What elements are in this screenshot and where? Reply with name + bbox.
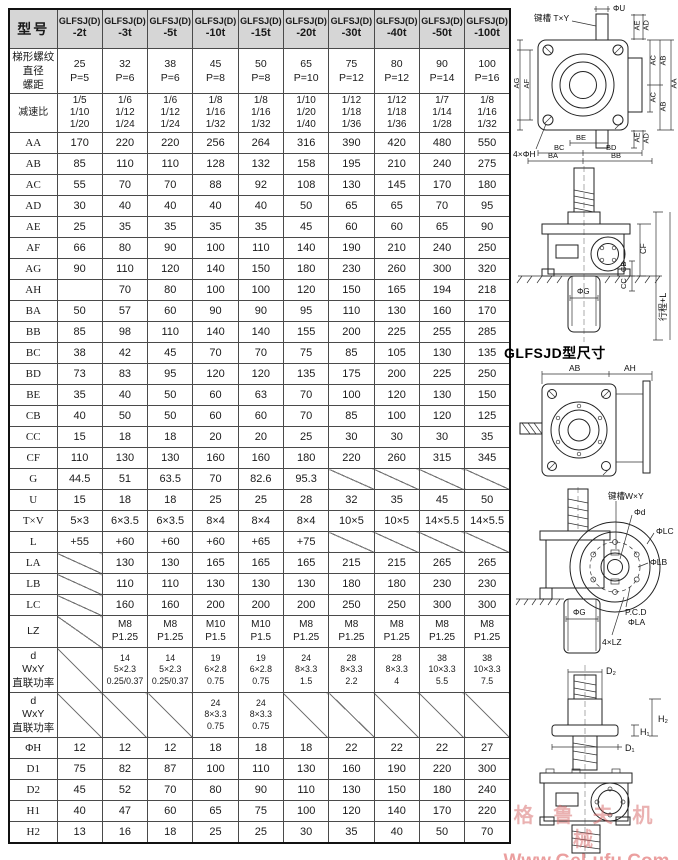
table-cell: 90 xyxy=(148,238,193,259)
table-cell: 5×3 xyxy=(57,511,102,532)
table-cell: 180 xyxy=(419,780,464,801)
table-cell: 35 xyxy=(193,217,238,238)
table-cell: 70 xyxy=(283,406,328,427)
table-cell: 35 xyxy=(238,217,283,238)
dim-label-ac-up: AC xyxy=(649,54,658,65)
dim-label-h1: H₁ xyxy=(640,727,650,737)
table-cell: 60 xyxy=(374,217,419,238)
table-cell: 1/121/181/36 xyxy=(329,94,374,133)
table-cell: 8×4 xyxy=(193,511,238,532)
table-cell: 170 xyxy=(465,301,510,322)
table-cell: 200 xyxy=(193,595,238,616)
table-row: BD738395120120135175200225250 xyxy=(9,364,510,385)
table-cell xyxy=(329,469,374,490)
table-cell: 95 xyxy=(283,301,328,322)
table-cell: 240 xyxy=(419,154,464,175)
table-cell: 22 xyxy=(329,738,374,759)
table-cell: M8P1.25 xyxy=(148,616,193,648)
table-cell: 1/51/101/20 xyxy=(57,94,102,133)
table-cell: 100 xyxy=(193,238,238,259)
row-label: H2 xyxy=(9,822,57,844)
table-cell: 215 xyxy=(329,553,374,574)
table-cell: 190 xyxy=(329,238,374,259)
table-cell: 165 xyxy=(238,553,283,574)
table-cell: 14×5.5 xyxy=(419,511,464,532)
table-cell: 128 xyxy=(193,154,238,175)
table-cell: 16 xyxy=(102,822,147,844)
table-cell: +75 xyxy=(283,532,328,553)
table-cell: 130 xyxy=(238,574,283,595)
table-cell: 98 xyxy=(102,322,147,343)
table-cell: 35 xyxy=(374,490,419,511)
table-cell: 100 xyxy=(193,759,238,780)
table-cell: 100 xyxy=(193,280,238,301)
table-cell: 70 xyxy=(419,196,464,217)
row-label: BA xyxy=(9,301,57,322)
table-cell: 35 xyxy=(329,822,374,844)
dim-label-4xphih: 4×ΦH xyxy=(513,149,536,159)
table-cell: 1/61/121/24 xyxy=(148,94,193,133)
table-cell: 218 xyxy=(465,280,510,301)
table-cell: 110 xyxy=(238,759,283,780)
table-cell: 196×2.80.75 xyxy=(238,648,283,693)
table-cell: 140 xyxy=(193,259,238,280)
table-cell: 12 xyxy=(148,738,193,759)
table-row: U15181825252832354550 xyxy=(9,490,510,511)
table-cell: 50 xyxy=(419,822,464,844)
table-cell: 150 xyxy=(329,280,374,301)
table-cell: 225 xyxy=(419,364,464,385)
table-cell: 50 xyxy=(102,406,147,427)
table-row: dWxY直联功率145×2.30.25/0.37145×2.30.25/0.37… xyxy=(9,648,510,693)
row-label: CB xyxy=(9,406,57,427)
table-cell: M8P1.25 xyxy=(374,616,419,648)
table-cell: 18 xyxy=(102,427,147,448)
row-label: AH xyxy=(9,280,57,301)
table-cell: 25 xyxy=(193,490,238,511)
table-cell: 180 xyxy=(283,259,328,280)
table-row: AG90110120140150180230260300320 xyxy=(9,259,510,280)
table-cell: 95 xyxy=(465,196,510,217)
drawing-flange-detail: D₂ H₂ H₁ D₁ xyxy=(512,665,678,860)
table-cell: 130 xyxy=(419,385,464,406)
table-cell: 120 xyxy=(374,385,419,406)
table-cell: 25 xyxy=(57,217,102,238)
row-label: LA xyxy=(9,553,57,574)
dim-label-ab-up: AB xyxy=(659,55,668,65)
table-cell: 80P=12 xyxy=(374,49,419,94)
table-cell: 20 xyxy=(238,427,283,448)
table-cell: 248×3.30.75 xyxy=(238,693,283,738)
table-row: T×V5×36×3.56×3.58×48×48×410×510×514×5.51… xyxy=(9,511,510,532)
dim-label-ad-bot: AD xyxy=(642,132,651,143)
col-header-15t: GLFSJ(D)-15t xyxy=(238,9,283,49)
table-cell: 95.3 xyxy=(283,469,328,490)
table-cell: 32P=6 xyxy=(102,49,147,94)
row-label: U xyxy=(9,490,57,511)
table-cell: 80 xyxy=(193,780,238,801)
table-cell: 57 xyxy=(102,301,147,322)
table-cell: 100 xyxy=(283,801,328,822)
table-cell xyxy=(329,693,374,738)
table-cell: 50 xyxy=(148,406,193,427)
table-cell: 105 xyxy=(374,343,419,364)
dim-label-d2: D₂ xyxy=(606,666,616,676)
table-cell: 140 xyxy=(238,322,283,343)
table-cell: 550 xyxy=(465,133,510,154)
table-row: AE25353535354560606590 xyxy=(9,217,510,238)
table-cell: 250 xyxy=(465,364,510,385)
table-cell xyxy=(102,693,147,738)
table-cell: 150 xyxy=(238,259,283,280)
table-row: CF110130130160160180220260315345 xyxy=(9,448,510,469)
row-label: CC xyxy=(9,427,57,448)
table-cell: 130 xyxy=(329,780,374,801)
row-label: D2 xyxy=(9,780,57,801)
dim-label-4xlz: 4×LZ xyxy=(602,637,622,647)
table-cell: 45 xyxy=(283,217,328,238)
table-cell: 25P=5 xyxy=(57,49,102,94)
table-cell: 220 xyxy=(148,133,193,154)
table-cell: 63 xyxy=(238,385,283,406)
row-label: BD xyxy=(9,364,57,385)
row-label: AC xyxy=(9,175,57,196)
table-cell: 60 xyxy=(329,217,374,238)
dim-label-phi-g2: ΦG xyxy=(573,608,586,617)
table-cell: 18 xyxy=(148,490,193,511)
table-cell xyxy=(465,469,510,490)
table-cell: 90 xyxy=(193,301,238,322)
dim-label-be: BE xyxy=(576,133,586,142)
table-cell: +55 xyxy=(57,532,102,553)
table-cell: 45 xyxy=(148,343,193,364)
table-cell: 264 xyxy=(238,133,283,154)
table-cell: 170 xyxy=(57,133,102,154)
row-label: 减速比 xyxy=(9,94,57,133)
table-cell: 160 xyxy=(102,595,147,616)
table-cell: 145×2.30.25/0.37 xyxy=(148,648,193,693)
table-cell xyxy=(465,532,510,553)
table-cell: 160 xyxy=(238,448,283,469)
table-cell: 170 xyxy=(419,801,464,822)
table-cell: 6×3.5 xyxy=(102,511,147,532)
table-row: LB110110130130130180180230230 xyxy=(9,574,510,595)
table-cell: 150 xyxy=(465,385,510,406)
table-cell: M8P1.25 xyxy=(419,616,464,648)
catalog-page: 型号GLFSJ(D)-2tGLFSJ(D)-3tGLFSJ(D)-5tGLFSJ… xyxy=(0,0,678,860)
table-cell: 65 xyxy=(193,801,238,822)
table-cell xyxy=(419,532,464,553)
table-cell: 90P=14 xyxy=(419,49,464,94)
table-cell: 194 xyxy=(419,280,464,301)
table-cell: 130 xyxy=(283,574,328,595)
table-cell: 260 xyxy=(374,259,419,280)
dim-label-ab-dn: AB xyxy=(659,101,668,111)
table-cell: 132 xyxy=(238,154,283,175)
table-row: H14047606575100120140170220 xyxy=(9,801,510,822)
table-cell: 18 xyxy=(238,738,283,759)
table-cell: 230 xyxy=(329,259,374,280)
table-cell: 130 xyxy=(102,448,147,469)
table-cell: 3810×3.37.5 xyxy=(465,648,510,693)
table-cell: 3810×3.35.5 xyxy=(419,648,464,693)
table-row: LA130130165165165215215265265 xyxy=(9,553,510,574)
table-cell: 250 xyxy=(329,595,374,616)
table-cell: 240 xyxy=(465,780,510,801)
table-cell: 140 xyxy=(374,801,419,822)
table-cell: 30 xyxy=(329,427,374,448)
row-label: AA xyxy=(9,133,57,154)
table-cell: M8P1.25 xyxy=(465,616,510,648)
table-cell: 220 xyxy=(329,448,374,469)
table-row: CC15181820202530303035 xyxy=(9,427,510,448)
row-label: ΦH xyxy=(9,738,57,759)
table-row: AH7080100100120150165194218 xyxy=(9,280,510,301)
table-cell: 70 xyxy=(102,280,147,301)
table-cell: 35 xyxy=(465,427,510,448)
table-cell: 30 xyxy=(283,822,328,844)
spec-table: 型号GLFSJ(D)-2tGLFSJ(D)-3tGLFSJ(D)-5tGLFSJ… xyxy=(8,8,511,844)
table-cell: 220 xyxy=(465,801,510,822)
table-cell: 120 xyxy=(193,364,238,385)
dim-label-ad-top: AD xyxy=(642,19,651,30)
table-cell: 10×5 xyxy=(329,511,374,532)
table-cell: 65 xyxy=(329,196,374,217)
table-cell: 38 xyxy=(57,343,102,364)
row-label: AF xyxy=(9,238,57,259)
dim-label-keyway-txy: 键槽 T×Y xyxy=(534,13,570,23)
table-cell: 14×5.5 xyxy=(465,511,510,532)
table-cell: 315 xyxy=(419,448,464,469)
dim-label-stroke-cn: 行程+L xyxy=(657,293,668,321)
table-cell: 300 xyxy=(465,595,510,616)
table-cell: 285 xyxy=(465,322,510,343)
table-row: G44.55163.57082.695.3 xyxy=(9,469,510,490)
table-cell: 165 xyxy=(283,553,328,574)
table-cell: 420 xyxy=(374,133,419,154)
table-cell: 165 xyxy=(374,280,419,301)
table-cell: 320 xyxy=(465,259,510,280)
table-row: H213161825253035405070 xyxy=(9,822,510,844)
table-cell: +65 xyxy=(238,532,283,553)
table-cell: 250 xyxy=(374,595,419,616)
table-cell: 145×2.30.25/0.37 xyxy=(102,648,147,693)
table-cell: 100 xyxy=(238,280,283,301)
row-label: LZ xyxy=(9,616,57,648)
table-cell: 22 xyxy=(419,738,464,759)
table-cell: 160 xyxy=(329,759,374,780)
table-cell: 30 xyxy=(57,196,102,217)
table-cell xyxy=(374,469,419,490)
table-row: D24552708090110130150180240 xyxy=(9,780,510,801)
dim-label-keyway-wxy: 键槽W×Y xyxy=(608,491,644,501)
table-cell: 18 xyxy=(283,738,328,759)
table-cell: 22 xyxy=(374,738,419,759)
table-cell: 44.5 xyxy=(57,469,102,490)
table-row: BA505760909095110130160170 xyxy=(9,301,510,322)
table-cell: 265 xyxy=(419,553,464,574)
table-row: AC5570708892108130145170180 xyxy=(9,175,510,196)
table-cell: 70 xyxy=(193,343,238,364)
table-cell: 6×3.5 xyxy=(148,511,193,532)
table-cell: 60 xyxy=(193,406,238,427)
table-cell xyxy=(283,693,328,738)
table-cell: 87 xyxy=(148,759,193,780)
table-cell: 35 xyxy=(102,217,147,238)
table-cell: 390 xyxy=(329,133,374,154)
drawing-front-view: ΦU 键槽 T×Y AE AD AC AB AA AC AB AE AD AF … xyxy=(512,2,678,164)
table-cell: 1/81/161/32 xyxy=(465,94,510,133)
table-cell: 95 xyxy=(148,364,193,385)
table-cell: 180 xyxy=(329,574,374,595)
table-cell: 158 xyxy=(283,154,328,175)
drawing-glfsjd-front: AB AH xyxy=(512,360,678,486)
table-cell: 110 xyxy=(102,259,147,280)
table-cell: 13 xyxy=(57,822,102,844)
table-cell: 170 xyxy=(419,175,464,196)
table-cell: 130 xyxy=(193,574,238,595)
table-cell: 256 xyxy=(193,133,238,154)
table-cell: 120 xyxy=(283,280,328,301)
table-cell: 60 xyxy=(148,301,193,322)
dim-label-ag: AG xyxy=(512,77,521,88)
row-label: AG xyxy=(9,259,57,280)
table-cell: 120 xyxy=(148,259,193,280)
table-cell: 55 xyxy=(57,175,102,196)
table-cell xyxy=(57,693,102,738)
table-cell: 316 xyxy=(283,133,328,154)
table-row: 梯形螺纹直径螺距25P=532P=638P=645P=850P=865P=107… xyxy=(9,49,510,94)
table-cell xyxy=(148,693,193,738)
row-label: AE xyxy=(9,217,57,238)
table-cell: 130 xyxy=(329,175,374,196)
table-cell: 50 xyxy=(148,385,193,406)
table-cell: 140 xyxy=(283,238,328,259)
table-cell: 18 xyxy=(148,427,193,448)
table-cell: 220 xyxy=(419,759,464,780)
row-label: D1 xyxy=(9,759,57,780)
table-cell xyxy=(419,469,464,490)
table-cell xyxy=(57,574,102,595)
table-cell: 50 xyxy=(465,490,510,511)
table-cell: 12 xyxy=(57,738,102,759)
table-cell: 120 xyxy=(329,801,374,822)
dim-label-phi-d: Φd xyxy=(634,507,646,517)
table-cell: 82 xyxy=(102,759,147,780)
table-cell: 130 xyxy=(148,553,193,574)
table-cell: 85 xyxy=(57,322,102,343)
table-cell: 80 xyxy=(148,280,193,301)
table-cell: 110 xyxy=(102,154,147,175)
dim-label-pcd: P.C.D xyxy=(625,607,647,617)
table-cell: 83 xyxy=(102,364,147,385)
col-header-5t: GLFSJ(D)-5t xyxy=(148,9,193,49)
dim-label-d1: D₁ xyxy=(625,743,635,753)
dim-label-phi-lc: ΦLC xyxy=(656,526,674,536)
table-cell: 135 xyxy=(283,364,328,385)
table-cell: 248×3.30.75 xyxy=(193,693,238,738)
table-cell: 130 xyxy=(419,343,464,364)
table-cell: 195 xyxy=(329,154,374,175)
table-cell: 30 xyxy=(374,427,419,448)
table-cell: 40 xyxy=(193,196,238,217)
dim-label-cb: CB xyxy=(619,262,628,272)
table-cell: 1/61/121/24 xyxy=(102,94,147,133)
table-cell: 1/81/161/32 xyxy=(193,94,238,133)
table-cell: 45 xyxy=(419,490,464,511)
table-cell: 50 xyxy=(283,196,328,217)
table-cell: 27 xyxy=(465,738,510,759)
table-cell: 120 xyxy=(419,406,464,427)
row-label: BE xyxy=(9,385,57,406)
table-cell: 66 xyxy=(57,238,102,259)
row-label: dWxY直联功率 xyxy=(9,693,57,738)
table-cell: 85 xyxy=(329,343,374,364)
table-cell: 275 xyxy=(465,154,510,175)
table-cell: 1/101/201/40 xyxy=(283,94,328,133)
row-label: L xyxy=(9,532,57,553)
row-label: dWxY直联功率 xyxy=(9,648,57,693)
table-cell: 90 xyxy=(57,259,102,280)
table-cell: 265 xyxy=(465,553,510,574)
table-cell: 90 xyxy=(238,780,283,801)
drawings-column: ΦU 键槽 T×Y AE AD AC AB AA AC AB AE AD AF … xyxy=(512,0,678,860)
table-cell: 85 xyxy=(329,406,374,427)
table-cell: M10P1.5 xyxy=(193,616,238,648)
row-label: H1 xyxy=(9,801,57,822)
table-row: BC38424570707585105130135 xyxy=(9,343,510,364)
dim-label-ac-dn: AC xyxy=(649,91,658,102)
table-cell: 35 xyxy=(148,217,193,238)
table-cell xyxy=(374,532,419,553)
table-cell: 345 xyxy=(465,448,510,469)
table-cell: 300 xyxy=(465,759,510,780)
table-cell: +60 xyxy=(102,532,147,553)
table-cell: 100P=16 xyxy=(465,49,510,94)
table-cell: +60 xyxy=(193,532,238,553)
table-cell: 18 xyxy=(148,822,193,844)
table-cell: 18 xyxy=(193,738,238,759)
table-cell: 25 xyxy=(238,490,283,511)
table-cell: 250 xyxy=(465,238,510,259)
table-cell: 15 xyxy=(57,427,102,448)
dim-label-phi-g: ΦG xyxy=(577,287,590,296)
dim-label-ab2: AB xyxy=(569,363,581,373)
table-row: L+55+60+60+60+65+75 xyxy=(9,532,510,553)
table-cell: 240 xyxy=(419,238,464,259)
table-cell: 32 xyxy=(329,490,374,511)
dim-label-phi-la: ΦLA xyxy=(628,617,646,627)
table-cell: 255 xyxy=(419,322,464,343)
row-label: LC xyxy=(9,595,57,616)
table-cell: 110 xyxy=(238,238,283,259)
table-cell: 130 xyxy=(374,301,419,322)
table-cell: 25 xyxy=(193,822,238,844)
table-cell: +60 xyxy=(148,532,193,553)
table-cell: 30 xyxy=(419,427,464,448)
row-label: AB xyxy=(9,154,57,175)
table-cell: 40 xyxy=(102,385,147,406)
row-label: LB xyxy=(9,574,57,595)
table-cell: 130 xyxy=(102,553,147,574)
dim-label-aa: AA xyxy=(670,78,678,88)
table-row: 减速比1/51/101/201/61/121/241/61/121/241/81… xyxy=(9,94,510,133)
table-cell: 100 xyxy=(329,385,374,406)
table-cell: 200 xyxy=(238,595,283,616)
col-header-50t: GLFSJ(D)-50t xyxy=(419,9,464,49)
table-cell xyxy=(465,693,510,738)
dim-label-bb: BB xyxy=(611,151,621,160)
